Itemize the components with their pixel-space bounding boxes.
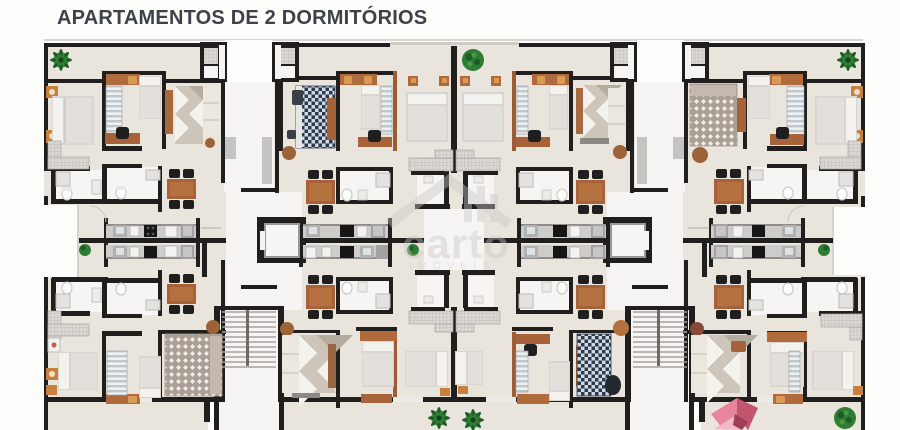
svg-text:IMÓVEIS: IMÓVEIS (409, 259, 495, 272)
svg-text:APARTAMENTOS DE 2 DORMITÓRIOS: APARTAMENTOS DE 2 DORMITÓRIOS (57, 5, 427, 29)
